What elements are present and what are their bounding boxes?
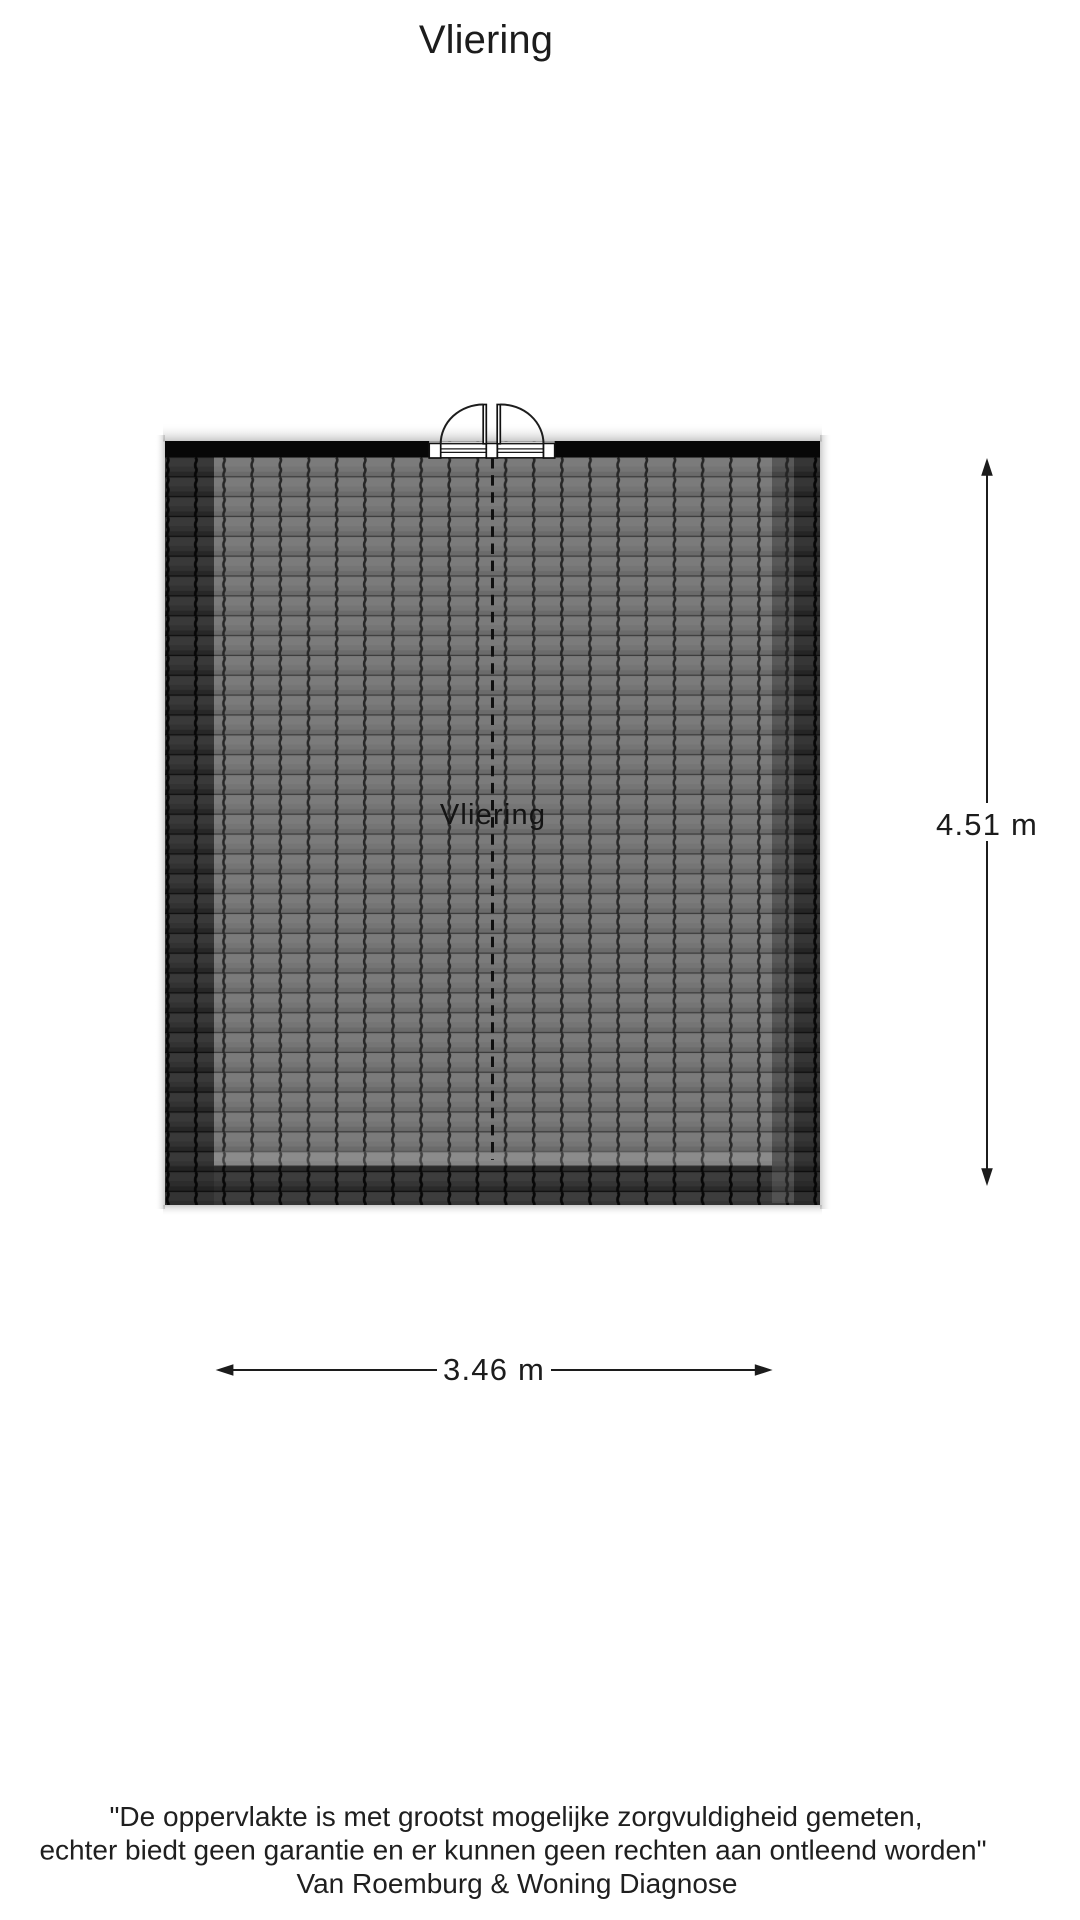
svg-text:3.46 m: 3.46 m (443, 1352, 545, 1387)
svg-text:"De oppervlakte is met grootst: "De oppervlakte is met grootst mogelijke… (109, 1801, 922, 1832)
svg-text:Vliering: Vliering (419, 18, 553, 62)
svg-text:echter biedt geen garantie en: echter biedt geen garantie en er kunnen … (39, 1835, 986, 1866)
svg-text:Van Roemburg & Woning Diagnose: Van Roemburg & Woning Diagnose (297, 1868, 738, 1899)
svg-text:Vliering: Vliering (440, 799, 546, 831)
svg-text:4.51 m: 4.51 m (936, 807, 1038, 842)
